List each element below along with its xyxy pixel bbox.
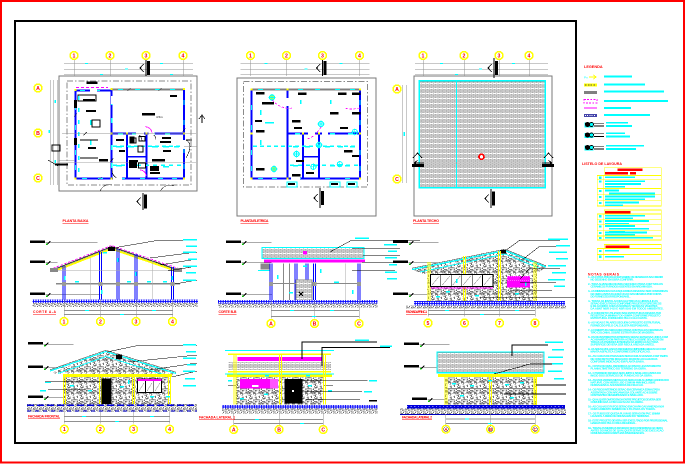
svg-text:FERRAGENS E ACESSORIOS DE FIXA: FERRAGENS E ACESSORIOS DE FIXACAO. bbox=[591, 383, 644, 387]
svg-text:1: 1 bbox=[63, 319, 66, 325]
svg-text:COMUNICANDO EVENTUAIS DIVERGEN: COMUNICANDO EVENTUAIS DIVERGENCIAS. bbox=[591, 431, 645, 435]
svg-text:7: 7 bbox=[498, 321, 501, 327]
svg-text:4: 4 bbox=[528, 53, 531, 59]
svg-text:LIGADOS A REDE DE DRENAGEM DO: LIGADOS A REDE DE DRENAGEM DO TERRENO. bbox=[591, 414, 650, 418]
svg-text:5: 5 bbox=[427, 321, 430, 327]
svg-text:TIPO COLONIAL SOBRE ESTRUTURA: TIPO COLONIAL SOBRE ESTRUTURA DE MADEIRA… bbox=[591, 330, 655, 334]
svg-text:MANTA ASFALTICA CONFORME ESPEC: MANTA ASFALTICA CONFORME ESPECIFICACAO. bbox=[591, 350, 651, 354]
svg-text:FORNECIDO PELO CALCULISTA RESP: FORNECIDO PELO CALCULISTA RESPONSAVEL. bbox=[591, 323, 650, 327]
svg-text:CONTRAPISO DESEMPENADO E NIVEL: CONTRAPISO DESEMPENADO E NIVELADO. bbox=[591, 393, 644, 397]
svg-text:C: C bbox=[321, 427, 325, 433]
svg-text:DA ABNT NBR 5410 E NBR 8160 EM: DA ABNT NBR 5410 E NBR 8160 EM TODOS AMB… bbox=[591, 307, 664, 311]
svg-text:1: 1 bbox=[63, 427, 66, 433]
svg-text:Pn: Pn bbox=[584, 75, 588, 79]
svg-text:PLANTA TECHO: PLANTA TECHO bbox=[413, 219, 439, 223]
svg-text:3: 3 bbox=[321, 53, 324, 59]
svg-text:A: A bbox=[36, 86, 40, 92]
svg-text:1: 1 bbox=[249, 53, 252, 59]
svg-text:FACHADA LATERAL 1: FACHADA LATERAL 1 bbox=[199, 416, 235, 420]
svg-text:B: B bbox=[36, 131, 40, 137]
svg-text:1: 1 bbox=[73, 53, 76, 59]
svg-text:3: 3 bbox=[135, 319, 138, 325]
svg-text:2: 2 bbox=[99, 427, 102, 433]
svg-text:A: A bbox=[269, 321, 273, 327]
svg-text:2: 2 bbox=[285, 53, 288, 59]
svg-text:4: 4 bbox=[358, 53, 361, 59]
svg-text:3: 3 bbox=[132, 427, 135, 433]
svg-text:CONFORME INDICACAO EM PLANTA B: CONFORME INDICACAO EM PLANTA BAIXA. bbox=[591, 359, 645, 363]
svg-text:3: 3 bbox=[498, 53, 501, 59]
svg-text:CERAMICOS FURADOS ASSENTES EM: CERAMICOS FURADOS ASSENTES EM ARGAMASSA. bbox=[591, 285, 653, 289]
svg-text:A: A bbox=[395, 87, 399, 93]
svg-text:4: 4 bbox=[182, 53, 185, 59]
svg-text:DO FORNECEDOR RESPONSAVEL.: DO FORNECEDOR RESPONSAVEL. bbox=[591, 294, 631, 298]
svg-text:C: C bbox=[395, 177, 399, 183]
svg-text:2: 2 bbox=[109, 53, 112, 59]
svg-text:4: 4 bbox=[171, 319, 174, 325]
svg-text:PLANTA ELETRICA: PLANTA ELETRICA bbox=[241, 219, 269, 223]
svg-text:FACHADA LATERAL 2: FACHADA LATERAL 2 bbox=[402, 416, 432, 420]
svg-text:NO DESENHO EM OBRA CONFERIR.: NO DESENHO EM OBRA CONFERIR. bbox=[591, 278, 634, 282]
svg-text:6: 6 bbox=[463, 321, 466, 327]
svg-text:C: C bbox=[36, 176, 40, 182]
svg-text:3: 3 bbox=[145, 53, 148, 59]
svg-text:C: C bbox=[357, 321, 361, 327]
svg-text:PLANIALTIMETRICO DO TERRENO DA: PLANIALTIMETRICO DO TERRENO DA OBRA. bbox=[591, 366, 647, 370]
svg-text:B: B bbox=[277, 427, 281, 433]
svg-text:PLANTA BAIXA: PLANTA BAIXA bbox=[63, 219, 89, 223]
svg-text:HABILITADO PELO CREA REGIONAL.: HABILITADO PELO CREA REGIONAL. bbox=[591, 421, 637, 425]
svg-text:8: 8 bbox=[534, 321, 537, 327]
svg-text:4.5m: 4.5m bbox=[156, 115, 163, 119]
svg-text:LISTELO DE LAVOURA: LISTELO DE LAVOURA bbox=[582, 162, 622, 166]
svg-text:ESTRUTURAL FORNECIDO PELO CALC: ESTRUTURAL FORNECIDO PELO CALCULISTA. bbox=[591, 316, 648, 320]
svg-text:B: B bbox=[313, 321, 317, 327]
svg-text:COM CAIMENTO MINIMO DE 0.5% PA: COM CAIMENTO MINIMO DE 0.5% PARA OS TUBO… bbox=[591, 407, 656, 411]
svg-text:CORTE A-A: CORTE A-A bbox=[33, 310, 57, 314]
svg-text:FACHADA PRINC.1: FACHADA PRINC.1 bbox=[406, 310, 427, 314]
svg-text:2: 2 bbox=[99, 319, 102, 325]
svg-text:INICIO DOS SERVICOS DE FUNDACA: INICIO DOS SERVICOS DE FUNDACAO DA OBRA. bbox=[591, 374, 653, 378]
svg-text:COMUNICADA A FISCALIZACAO DA O: COMUNICADA A FISCALIZACAO DA OBRA. bbox=[591, 400, 644, 404]
svg-text:LEGENDA: LEGENDA bbox=[584, 65, 603, 69]
svg-text:CORTE B-B: CORTE B-B bbox=[219, 310, 238, 314]
svg-text:FACHADA FRONTAL: FACHADA FRONTAL bbox=[28, 415, 60, 419]
svg-text:1: 1 bbox=[422, 53, 425, 59]
svg-text:A: A bbox=[232, 427, 236, 433]
svg-text:2: 2 bbox=[463, 53, 466, 59]
svg-text:4: 4 bbox=[168, 427, 171, 433]
svg-text:SUPERFICIE DEVERA SER REGULARI: SUPERFICIE DEVERA SER REGULARIZADA ANTES… bbox=[591, 343, 655, 347]
